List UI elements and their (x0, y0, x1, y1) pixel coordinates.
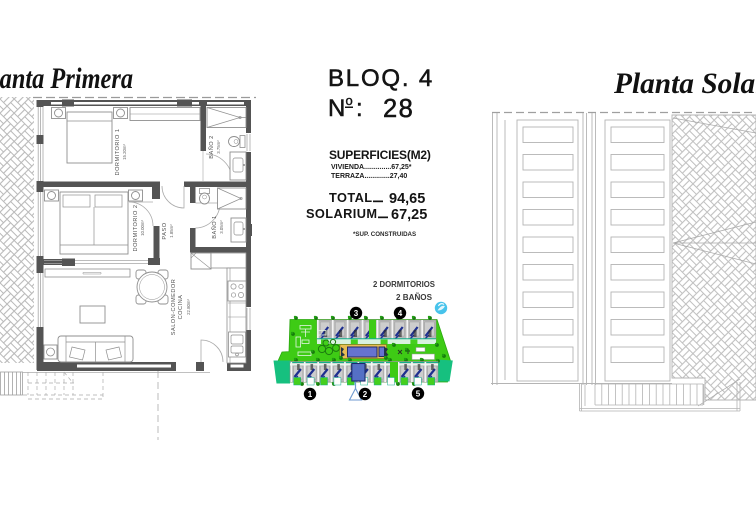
svg-text:10.00m²: 10.00m² (140, 220, 145, 236)
svg-text:BAÑO 2: BAÑO 2 (208, 135, 215, 159)
svg-text::: : (356, 95, 363, 122)
svg-text:TOTAL: TOTAL (329, 190, 372, 205)
svg-text:o: o (346, 93, 353, 108)
svg-text:5: 5 (416, 390, 421, 399)
svg-text:2 BAÑOS: 2 BAÑOS (396, 292, 432, 302)
svg-text:*SUP. CONSTRUIDAS: *SUP. CONSTRUIDAS (353, 231, 416, 238)
svg-text:2 DORMITORIOS: 2 DORMITORIOS (373, 279, 435, 289)
svg-text:COCINA: COCINA (178, 295, 184, 320)
svg-text:94,65: 94,65 (389, 191, 425, 207)
svg-text:28: 28 (383, 95, 414, 123)
svg-text:N: N (328, 95, 345, 122)
svg-text:TERRAZA.............27,40: TERRAZA.............27,40 (331, 173, 407, 180)
svg-text:SOLARIUM: SOLARIUM (306, 206, 377, 221)
svg-text:SUPERFICIES(M2): SUPERFICIES(M2) (329, 148, 431, 162)
svg-text:15.20m²: 15.20m² (122, 144, 127, 160)
svg-text:Planta Primera: Planta Primera (0, 62, 133, 95)
svg-text:2: 2 (363, 390, 368, 399)
svg-text:22.80m²: 22.80m² (186, 299, 191, 315)
svg-text:67,25: 67,25 (391, 207, 427, 223)
svg-text:3.05m²: 3.05m² (219, 220, 224, 234)
svg-text:SALON-COMEDOR: SALON-COMEDOR (171, 279, 177, 336)
svg-text:3: 3 (354, 309, 359, 318)
svg-text:3.75m²: 3.75m² (216, 140, 221, 154)
svg-text:BLOQ. 4: BLOQ. 4 (328, 65, 434, 92)
svg-text:PASO: PASO (162, 222, 168, 239)
svg-text:BAÑO 1: BAÑO 1 (211, 215, 218, 239)
svg-text:4: 4 (398, 309, 403, 318)
svg-text:DORMITORIO 2: DORMITORIO 2 (133, 205, 139, 252)
svg-text:VIVIENDA..............67,25*: VIVIENDA..............67,25* (331, 164, 412, 171)
svg-text:DORMITORIO 1: DORMITORIO 1 (115, 129, 121, 176)
svg-text:1.85m²: 1.85m² (169, 224, 174, 238)
svg-text:Planta Solarium: Planta Solarium (613, 67, 756, 100)
svg-text:1: 1 (308, 390, 313, 399)
